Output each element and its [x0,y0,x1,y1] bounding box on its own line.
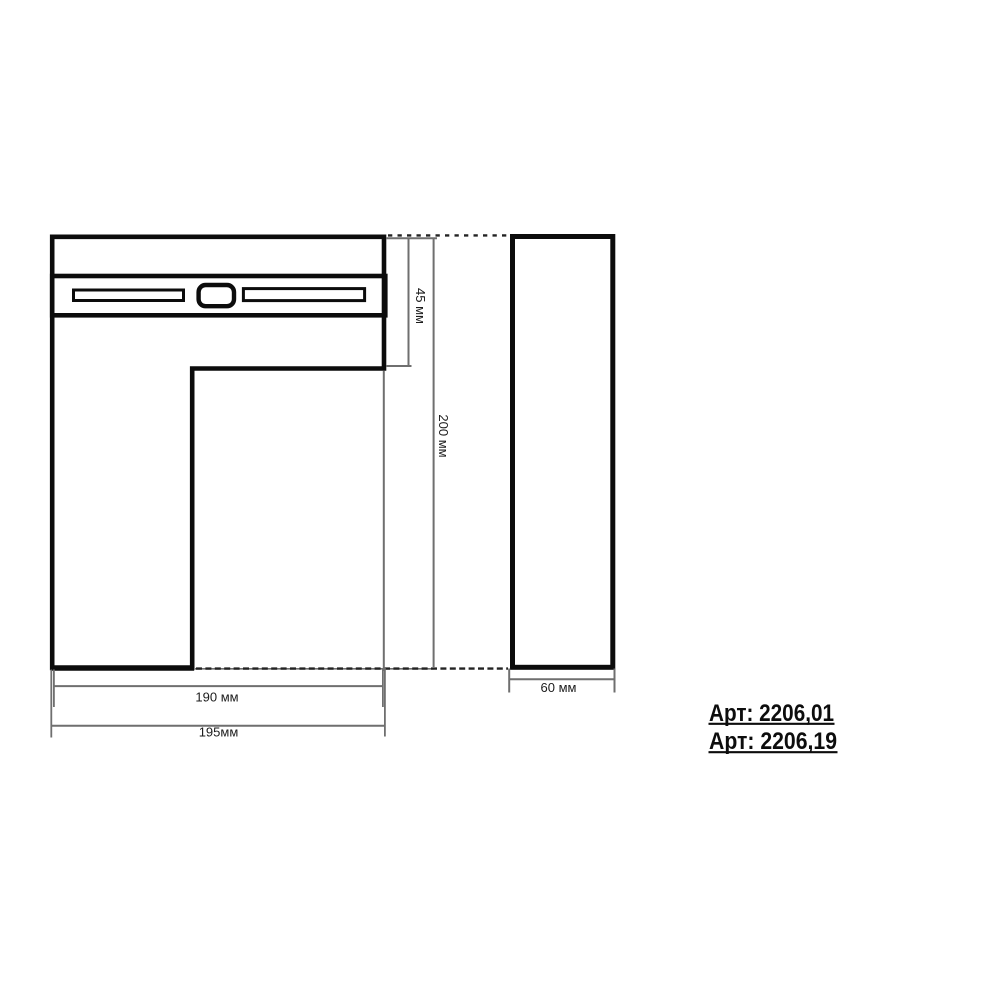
svg-text:195мм: 195мм [199,724,239,739]
svg-text:45 мм: 45 мм [413,288,428,324]
svg-text:190 мм: 190 мм [195,689,238,704]
svg-text:200 мм: 200 мм [436,414,451,457]
svg-text:Арт: 2206,19: Арт: 2206,19 [709,728,837,755]
svg-text:60 мм: 60 мм [541,680,577,695]
